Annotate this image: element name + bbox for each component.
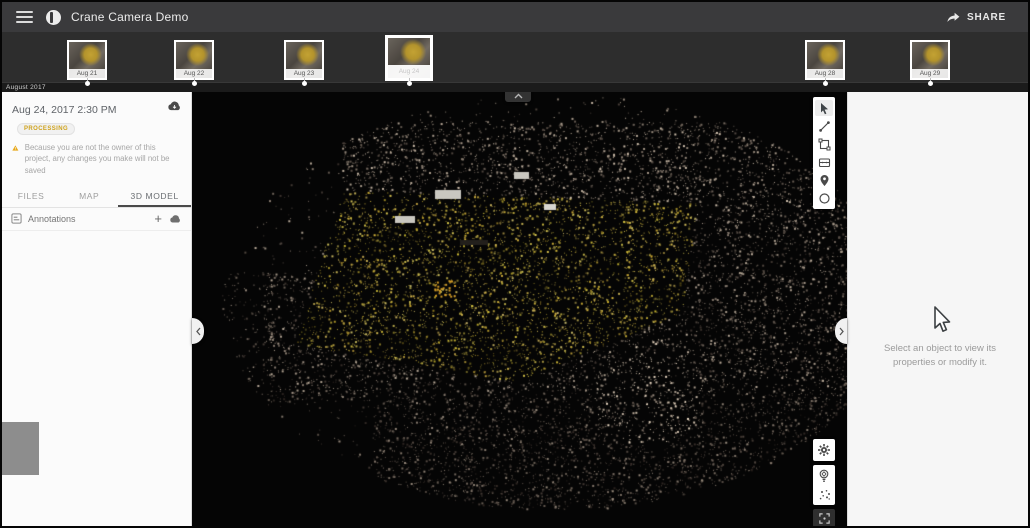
volume-box-icon <box>818 156 831 169</box>
capture-date: Aug 23 <box>286 69 322 78</box>
timeline-dot <box>192 81 197 86</box>
measure-line-icon <box>818 120 831 133</box>
cursor-arrow-icon <box>928 306 952 334</box>
top-bar: Crane Camera Demo SHARE <box>2 2 1028 32</box>
warning-text: Because you are not the owner of this pr… <box>25 142 181 176</box>
timeline-dot <box>302 81 307 86</box>
dataset-date: Aug 24, 2017 2:30 PM <box>12 104 117 116</box>
capture-thumbnail[interactable]: Aug 29 <box>910 40 950 80</box>
dataset-header: Aug 24, 2017 2:30 PM Processing <box>2 92 191 139</box>
capture-thumbnail[interactable]: Aug 28 <box>805 40 845 80</box>
location-marker-tool-button[interactable] <box>815 172 833 188</box>
share-button[interactable]: SHARE <box>939 10 1012 25</box>
select-tool-button[interactable] <box>815 100 833 116</box>
add-annotation-button[interactable]: + <box>154 212 162 225</box>
select-arrow-icon <box>818 102 830 115</box>
tab-map[interactable]: MAP <box>60 184 118 207</box>
fullscreen-icon <box>818 512 831 525</box>
annotations-icon <box>11 213 22 224</box>
capture-thumbnail-selected[interactable]: Aug 24 <box>386 36 432 80</box>
left-panel-overlay-box <box>2 422 39 475</box>
capture-date: Aug 22 <box>176 69 212 78</box>
tab-3d-model[interactable]: 3D MODEL <box>118 184 191 207</box>
measure-volume-tool-button[interactable] <box>815 154 833 170</box>
area-polygon-icon <box>818 138 831 151</box>
cloud-icon <box>168 214 182 224</box>
cloud-download-icon <box>166 100 182 112</box>
point-density-button[interactable] <box>815 486 833 502</box>
measure-distance-tool-button[interactable] <box>815 118 833 134</box>
app-window: Crane Camera Demo SHARE Aug 21 Aug 22 Au… <box>0 0 1030 528</box>
download-button[interactable] <box>166 100 182 115</box>
cloud-sync-button[interactable] <box>168 214 182 224</box>
timeline-dot <box>823 81 828 86</box>
polygon-tool-button[interactable] <box>815 190 833 206</box>
viewport-toolbar <box>813 97 835 209</box>
gear-icon <box>817 443 831 457</box>
scatter-points-icon <box>818 488 831 501</box>
timeline-dot <box>85 81 90 86</box>
timeline-dot <box>407 81 412 86</box>
chevron-right-icon <box>839 327 844 336</box>
capture-date: Aug 21 <box>69 69 105 78</box>
timeline-bar[interactable]: August 2017 <box>2 82 1028 92</box>
capture-date: Aug 29 <box>912 69 948 78</box>
timeline-month-label: August 2017 <box>6 84 46 91</box>
warning-icon <box>12 142 19 154</box>
chevron-left-icon <box>196 327 201 336</box>
share-label: SHARE <box>967 12 1006 23</box>
panel-tabs: FILES MAP 3D MODEL <box>2 184 191 208</box>
circle-shape-icon <box>818 192 831 205</box>
menu-icon[interactable] <box>16 11 33 23</box>
properties-panel: Select an object to view its properties … <box>847 92 1030 528</box>
viewport-canvas[interactable] <box>192 92 847 528</box>
share-icon <box>945 11 961 24</box>
annotations-label: Annotations <box>28 214 76 224</box>
appearance-button[interactable] <box>815 468 833 484</box>
app-title: Crane Camera Demo <box>71 10 188 24</box>
viewport-container <box>192 92 847 528</box>
ownership-warning: Because you are not the owner of this pr… <box>2 139 191 184</box>
capture-date: Aug 28 <box>807 69 843 78</box>
timeline-dot <box>928 81 933 86</box>
left-panel: Aug 24, 2017 2:30 PM Processing Because … <box>2 92 192 528</box>
capture-timeline-strip[interactable]: Aug 21 Aug 22 Aug 23 Aug 24 Aug 28 Aug 2… <box>2 32 1028 82</box>
lightbulb-icon <box>818 469 830 483</box>
chevron-up-icon <box>514 93 523 99</box>
tab-files[interactable]: FILES <box>2 184 60 207</box>
measure-area-tool-button[interactable] <box>815 136 833 152</box>
app-logo-icon <box>46 10 61 25</box>
fullscreen-button[interactable] <box>813 509 835 527</box>
status-badge: Processing <box>17 123 75 135</box>
capture-thumbnail[interactable]: Aug 23 <box>284 40 324 80</box>
location-pin-icon <box>819 174 830 187</box>
capture-thumbnail[interactable]: Aug 21 <box>67 40 107 80</box>
capture-date: Aug 24 <box>388 65 430 78</box>
viewport-appearance-box <box>813 465 835 505</box>
capture-thumbnail[interactable]: Aug 22 <box>174 40 214 80</box>
empty-state-text: Select an object to view its properties … <box>864 342 1016 371</box>
viewport-settings-box <box>813 439 835 461</box>
annotations-row[interactable]: Annotations + <box>2 208 191 231</box>
settings-button[interactable] <box>815 442 833 458</box>
